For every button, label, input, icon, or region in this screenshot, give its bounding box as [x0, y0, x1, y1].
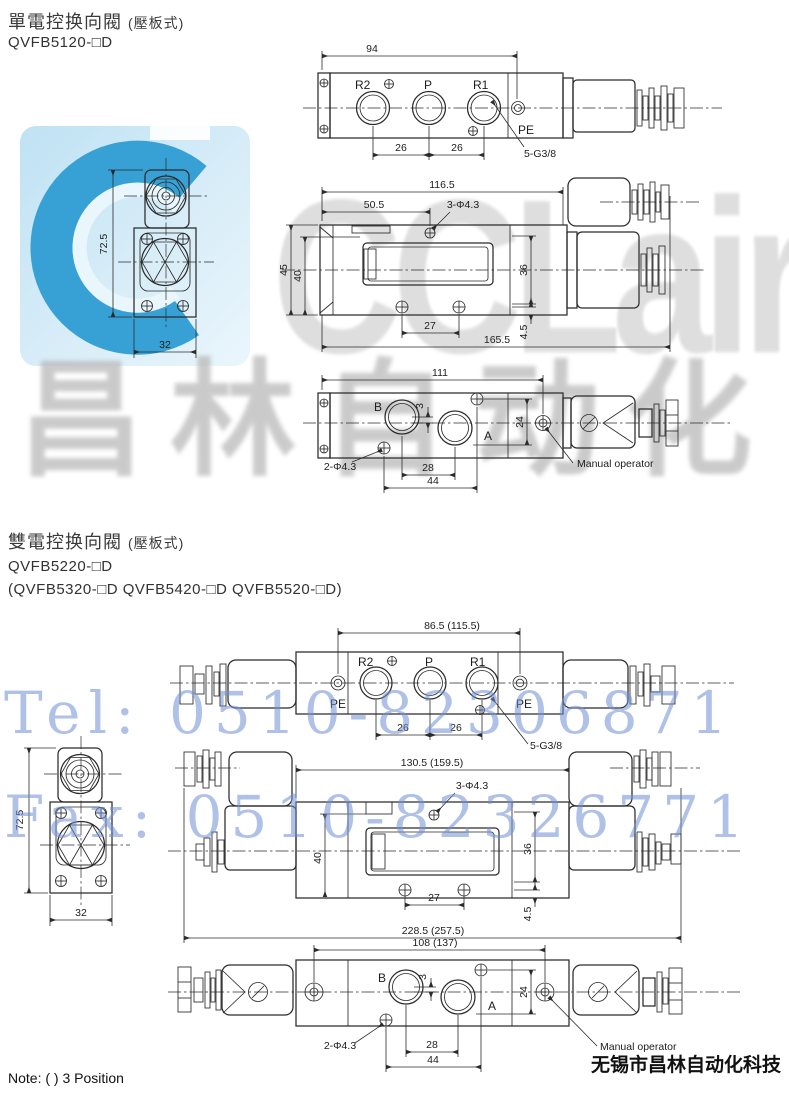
holes-label: 2-Φ4.3 — [324, 1040, 356, 1052]
holes-label: 2-Φ4.3 — [324, 461, 356, 473]
dimensions: 86.5 (115.5) 26 26 5-G3/8 — [338, 620, 562, 752]
body-end — [134, 228, 196, 317]
dim-130-5: 130.5 (159.5) — [401, 757, 463, 769]
dim-36: 36 — [518, 264, 530, 276]
section2-title-text: 雙電控换向閥 — [8, 532, 122, 552]
dim-3: 3 — [414, 403, 426, 409]
manual-operator-assembly — [536, 396, 679, 448]
valve-body-outline — [318, 393, 563, 458]
dim-26a: 26 — [395, 142, 407, 154]
port-label-a: A — [488, 999, 496, 1013]
dim-32: 32 — [159, 339, 171, 351]
note-text: Note: ( ) 3 Position — [8, 1070, 124, 1086]
left-solenoid — [180, 660, 296, 708]
port-label-pe-left: PE — [330, 697, 346, 711]
thread-label: 5-G3/8 — [524, 148, 556, 160]
dim-44: 44 — [427, 475, 439, 487]
drawing-single-side-view: 116.5 50.5 3-Φ4.3 45 40 36 4.5 27 165.5 — [276, 176, 708, 368]
port-label-p: P — [424, 78, 432, 92]
dim-116-5: 116.5 — [429, 179, 455, 191]
dim-26a: 26 — [397, 722, 409, 734]
dim-111: 111 — [432, 367, 448, 379]
drawing-single-top-view: R2 P R1 PE 94 26 26 5-G3/8 — [295, 44, 730, 189]
dim-27: 27 — [428, 892, 440, 904]
dimensions: 130.5 (159.5) 3-Φ4.3 40 36 4.5 27 228.5 … — [184, 757, 681, 943]
section1-model: QVFB5120-□D — [8, 34, 113, 51]
section1-subtitle: (壓板式) — [128, 15, 184, 31]
dim-40: 40 — [292, 270, 304, 282]
dimensions: 116.5 50.5 3-Φ4.3 45 40 36 4.5 27 165.5 — [278, 179, 670, 352]
coil-end — [145, 170, 189, 228]
dim-44: 44 — [427, 1054, 439, 1066]
port-label-pe: PE — [518, 123, 534, 137]
dim-26b: 26 — [450, 722, 462, 734]
dim-32: 32 — [75, 907, 87, 919]
dim-4-5: 4.5 — [522, 907, 534, 922]
coil-end — [58, 748, 102, 802]
drawing-single-end-view: 72.5 32 — [88, 152, 253, 370]
dim-40: 40 — [312, 852, 324, 864]
port-label-p: P — [425, 655, 433, 669]
manual-operator-label: Manual operator — [577, 458, 654, 470]
holes-label: 3-Φ4.3 — [456, 780, 488, 792]
dim-27: 27 — [424, 320, 436, 332]
drawing-double-top-view: R2 P R1 PE PE 86.5 (115.5) 26 26 5-G3/8 — [162, 616, 740, 756]
holes-label: 3-Φ4.3 — [447, 199, 479, 211]
solenoid-assembly — [567, 178, 669, 308]
drawing-double-side-view: 130.5 (159.5) 3-Φ4.3 40 36 4.5 27 228.5 … — [162, 748, 747, 948]
dim-28: 28 — [422, 462, 434, 474]
port-label-r2: R2 — [358, 655, 374, 669]
dim-28: 28 — [426, 1039, 438, 1051]
port-label-r2: R2 — [355, 78, 371, 92]
solenoid-assembly — [563, 78, 684, 138]
dim-50-5: 50.5 — [364, 199, 385, 211]
section1-title-text: 單電控换向閥 — [8, 12, 122, 32]
dim-36: 36 — [522, 843, 534, 855]
dim-3: 3 — [417, 974, 429, 980]
dim-26b: 26 — [451, 142, 463, 154]
section1-title: 單電控换向閥 (壓板式) — [8, 8, 184, 34]
dim-24: 24 — [514, 416, 526, 428]
dim-72-5: 72.5 — [14, 810, 26, 831]
drawing-double-end-view: 72.5 32 — [18, 722, 183, 934]
manual-operator-label: Manual operator — [600, 1041, 677, 1053]
dim-94: 94 — [366, 43, 378, 55]
right-solenoid — [563, 660, 675, 708]
right-manual-operator-assembly — [573, 965, 682, 1015]
port-label-r1: R1 — [470, 655, 486, 669]
port-label-a: A — [484, 429, 492, 443]
dim-72-5: 72.5 — [98, 234, 110, 255]
section2-alt-models: (QVFB5320-□D QVFB5420-□D QVFB5520-□D) — [8, 581, 342, 598]
section2-title: 雙電控换向閥 (壓板式) — [8, 528, 184, 554]
port-label-b: B — [378, 971, 386, 985]
left-manual-operator-assembly — [178, 965, 293, 1015]
dimensions: 94 26 26 5-G3/8 — [322, 43, 556, 160]
dim-108: 108 (137) — [413, 937, 458, 949]
ports — [357, 79, 525, 136]
port-label-r1: R1 — [473, 78, 489, 92]
dim-4-5: 4.5 — [518, 325, 530, 340]
dim-24: 24 — [518, 986, 530, 998]
drawing-single-bottom-view: B A 111 3 24 2-Φ4.3 28 44 Manual operato… — [295, 362, 735, 510]
port-label-b: B — [374, 400, 382, 414]
section2-model: QVFB5220-□D — [8, 558, 113, 575]
port-label-pe-right: PE — [516, 697, 532, 711]
dim-86-5: 86.5 (115.5) — [424, 620, 480, 632]
section2-subtitle: (壓板式) — [128, 535, 184, 551]
drawing-double-bottom-view: B A 108 (137) 3 24 2-Φ4.3 28 44 Manual o… — [162, 932, 747, 1075]
dim-45: 45 — [278, 264, 290, 276]
dim-165-5: 165.5 — [484, 334, 510, 346]
